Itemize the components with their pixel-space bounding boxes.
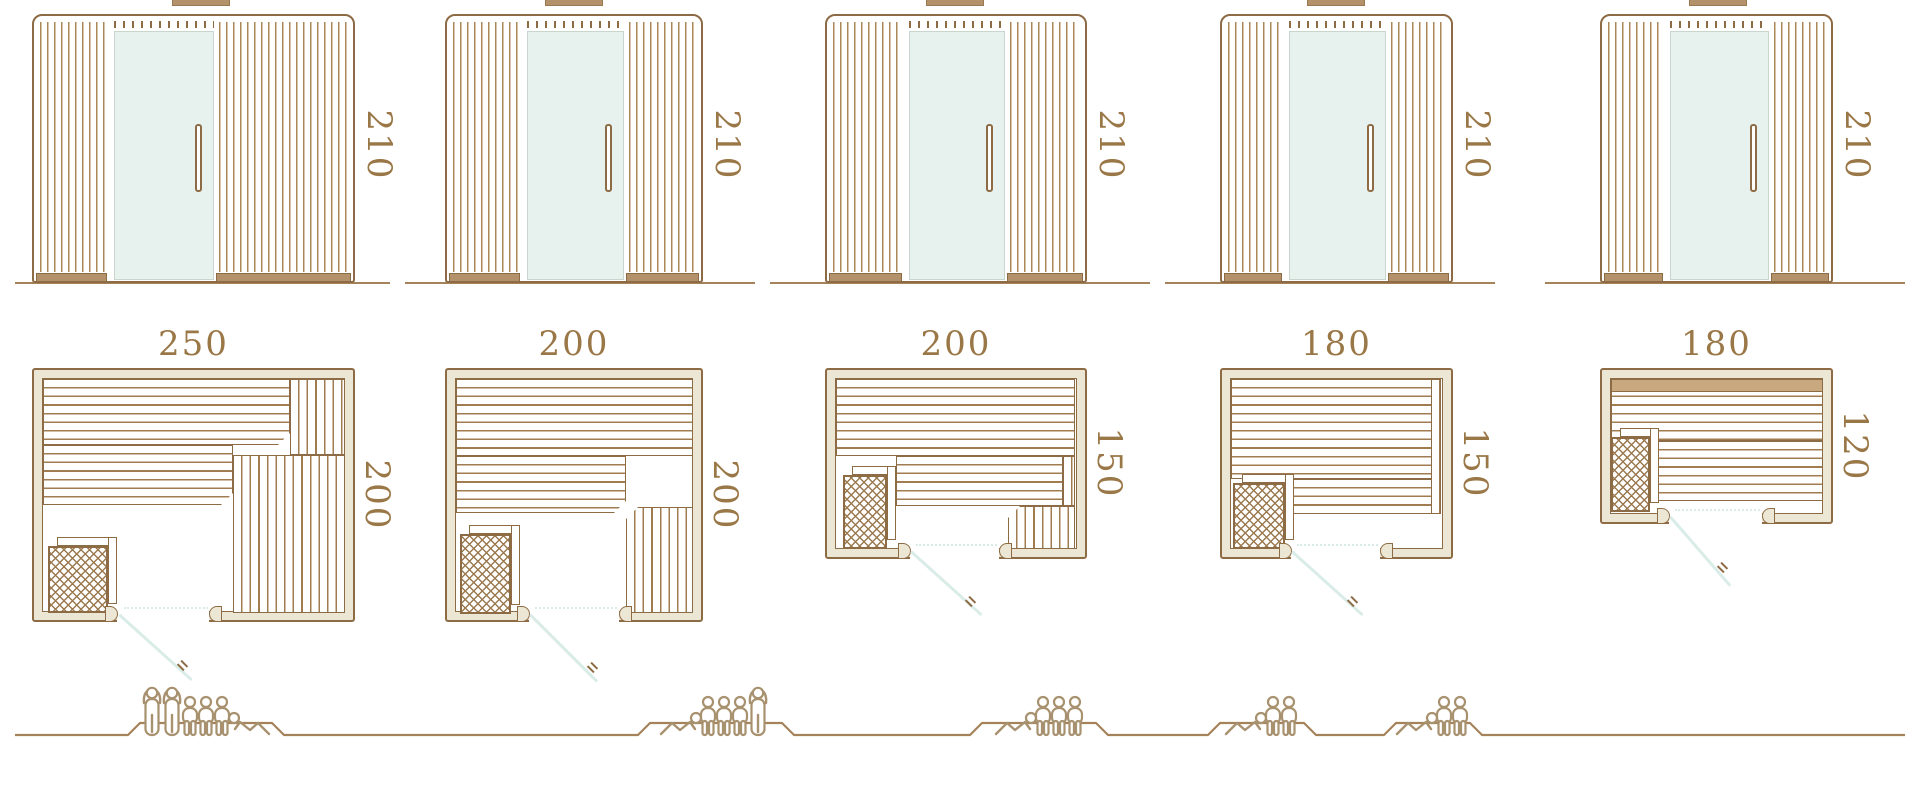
- bench-lower: [43, 445, 233, 505]
- door-knob-marks: [965, 596, 976, 607]
- wood-slat-panel-right: [1391, 22, 1445, 272]
- front-elevation: [32, 14, 355, 283]
- depth-dimension: 150: [1458, 427, 1492, 499]
- floor-plan: [825, 368, 1087, 559]
- base-plinth-left: [449, 273, 520, 282]
- bench-backrest: [1611, 379, 1823, 392]
- sauna-heater: [843, 466, 896, 549]
- wood-slat-panel-right: [629, 22, 695, 272]
- width-dimension: 180: [1600, 327, 1833, 361]
- capacity-ground-line: [0, 700, 1920, 760]
- heater-mesh: [48, 546, 108, 613]
- roof-vent: [172, 0, 230, 6]
- floor-area: [455, 378, 693, 612]
- door-handle: [605, 124, 612, 192]
- sauna-model-250x200: 210 250 200: [32, 0, 355, 789]
- sauna-model-180x150: 210 180 150: [1220, 0, 1453, 789]
- base-plinth-left: [829, 273, 902, 282]
- roof-vent: [1689, 0, 1747, 6]
- heater-guard-right: [887, 466, 896, 540]
- wood-slat-panel-left: [1228, 22, 1282, 272]
- bench-side-upper: [290, 379, 345, 455]
- base-plinth-left: [36, 273, 107, 282]
- height-dimension: 210: [1840, 109, 1874, 181]
- sauna-model-180x120: 210 180 120: [1600, 0, 1833, 789]
- heater-guard-right: [1285, 474, 1294, 540]
- base-plinth-right: [1007, 273, 1083, 282]
- front-elevation: [1220, 14, 1453, 283]
- bench-side: [233, 455, 345, 613]
- wall-end-cap: [999, 543, 1012, 559]
- floor-plan: [1600, 368, 1833, 524]
- floor-area: [42, 378, 345, 612]
- wood-slat-panel-right: [219, 22, 347, 272]
- bench-side: [626, 507, 693, 613]
- heater-guard-right: [1650, 428, 1659, 503]
- wood-slat-panel-left: [833, 22, 902, 272]
- width-dimension: 250: [32, 327, 355, 361]
- width-dimension: 180: [1220, 327, 1453, 361]
- capacity-figures: [659, 685, 771, 737]
- door-closed-line: [1675, 509, 1760, 511]
- door-closed-line: [535, 607, 617, 609]
- wood-slat-panel-right: [1774, 22, 1825, 272]
- sauna-heater: [460, 525, 520, 614]
- door-handle: [986, 124, 993, 192]
- height-dimension: 210: [1460, 109, 1494, 181]
- door-swing-line: [118, 613, 193, 681]
- base-plinth-left: [1604, 273, 1663, 282]
- capacity-figures: [1224, 685, 1300, 737]
- floor-plan: [1220, 368, 1453, 559]
- wall-end-cap: [619, 606, 632, 622]
- base-plinth-right: [1771, 273, 1829, 282]
- floor-plan: [32, 368, 355, 622]
- base-plinth-left: [1224, 273, 1282, 282]
- door-closed-line: [1297, 544, 1378, 546]
- wall-end-cap: [1380, 543, 1393, 559]
- door-closed-line: [124, 607, 208, 609]
- roof-vent: [1307, 0, 1365, 6]
- door-handle: [1367, 124, 1374, 192]
- bench-lower: [1289, 479, 1441, 514]
- bench-upper: [1231, 379, 1441, 479]
- heater-mesh: [843, 475, 887, 549]
- door-handle: [1750, 124, 1757, 192]
- bench-edge-strip: [1431, 379, 1441, 514]
- base-plinth-right: [216, 273, 351, 282]
- bench-lower: [456, 456, 626, 513]
- depth-dimension: 150: [1092, 427, 1126, 499]
- depth-dimension: 200: [708, 459, 742, 531]
- heater-guard-right: [511, 525, 520, 605]
- roof-vent: [926, 0, 984, 6]
- door-handle: [195, 124, 202, 192]
- wood-slat-panel-left: [1608, 22, 1663, 272]
- capacity-figures: [139, 685, 271, 737]
- wall-end-cap: [1762, 508, 1775, 524]
- depth-dimension: 200: [360, 459, 394, 531]
- bench-upper: [456, 379, 693, 456]
- floor-area: [1230, 378, 1443, 549]
- capacity-figures: [1395, 685, 1471, 737]
- height-dimension: 210: [710, 109, 744, 181]
- depth-dimension: 120: [1838, 410, 1872, 482]
- front-elevation: [1600, 14, 1833, 283]
- front-elevation: [825, 14, 1087, 283]
- door-closed-line: [916, 544, 997, 546]
- height-dimension: 210: [362, 109, 396, 181]
- sauna-model-200x150: 210 200 150: [825, 0, 1087, 789]
- sauna-heater: [48, 537, 117, 613]
- floor-area: [835, 378, 1077, 549]
- sauna-heater: [1233, 474, 1294, 549]
- heater-mesh: [1233, 483, 1285, 549]
- wall-end-cap: [209, 606, 222, 622]
- sauna-size-diagram: 210 250 200: [0, 0, 1920, 789]
- bench-upper: [43, 379, 290, 445]
- base-plinth-right: [626, 273, 699, 282]
- heater-mesh: [460, 534, 511, 614]
- front-elevation: [445, 14, 703, 283]
- door-knob-marks: [1347, 596, 1358, 607]
- wood-slat-panel-left: [453, 22, 520, 272]
- bench-lower: [1656, 441, 1823, 501]
- sauna-heater: [1611, 428, 1659, 512]
- width-dimension: 200: [825, 327, 1087, 361]
- heater-guard-right: [108, 537, 117, 604]
- bench-edge-strip: [1063, 456, 1075, 506]
- capacity-figures: [994, 685, 1086, 737]
- bench-lower: [896, 456, 1063, 506]
- sauna-model-200x200: 210 200 200: [445, 0, 703, 789]
- bench-side: [1008, 506, 1075, 549]
- wood-slat-panel-right: [1010, 22, 1079, 272]
- base-plinth-right: [1388, 273, 1449, 282]
- height-dimension: 210: [1094, 109, 1128, 181]
- wood-slat-panel-left: [40, 22, 107, 272]
- floor-area: [1610, 378, 1823, 514]
- roof-vent: [545, 0, 603, 6]
- heater-mesh: [1611, 437, 1650, 512]
- width-dimension: 200: [445, 327, 703, 361]
- floor-plan: [445, 368, 703, 622]
- door-swing-line: [1669, 516, 1732, 587]
- bench-upper: [836, 379, 1075, 456]
- door-swing-line: [529, 613, 598, 682]
